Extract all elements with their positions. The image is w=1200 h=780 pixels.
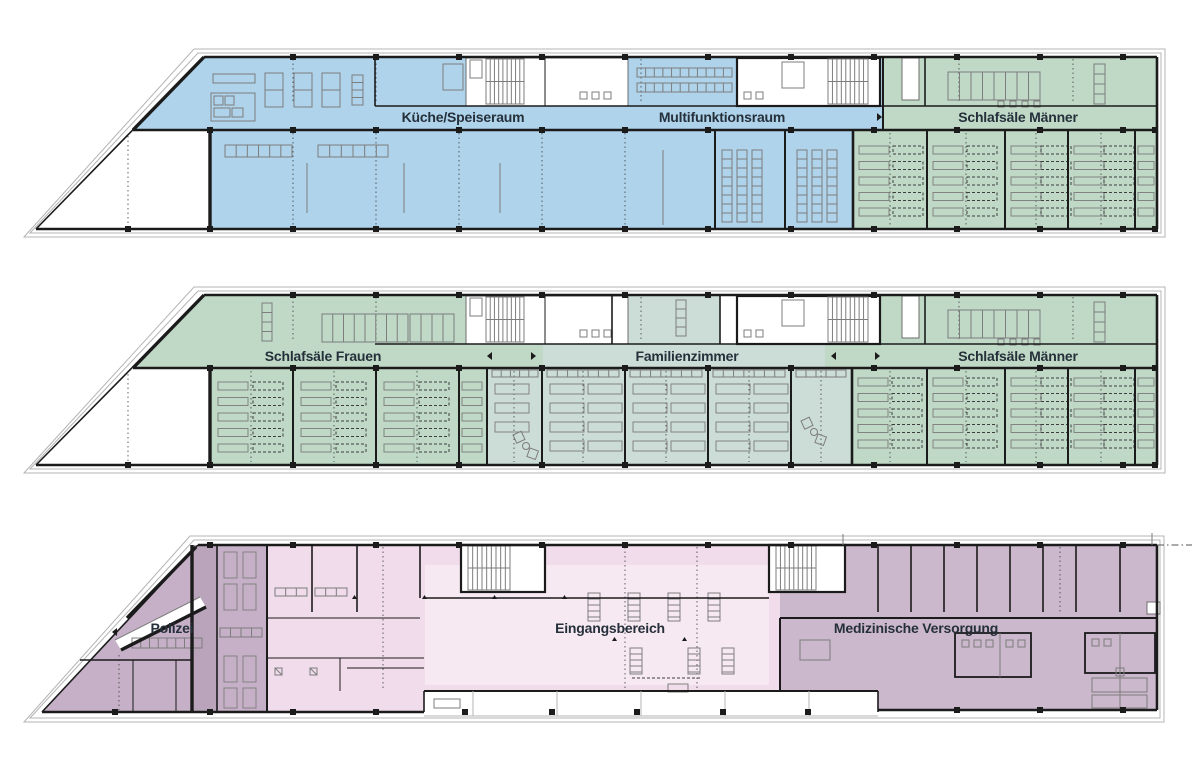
column-marker: [954, 365, 960, 371]
floor-middle-geometry: [24, 287, 1165, 473]
room-label-kueche-speiseraum: Küche/Speiseraum: [402, 109, 525, 125]
column-marker: [1152, 365, 1158, 371]
column-marker: [456, 462, 462, 468]
floor-plans-drawing: Küche/Speiseraum Multifunktionsraum Schl…: [0, 0, 1200, 780]
column-marker: [373, 127, 379, 133]
room-label-multifunktionsraum: Multifunktionsraum: [659, 109, 785, 125]
column-marker: [622, 365, 628, 371]
column-marker: [705, 127, 711, 133]
column-marker: [1120, 127, 1126, 133]
column-marker: [622, 127, 628, 133]
zone-corridor: [192, 545, 217, 712]
column-marker: [1120, 542, 1126, 548]
room-label-schlafsaele-frauen: Schlafsäle Frauen: [265, 348, 381, 364]
column-marker: [1037, 542, 1043, 548]
column-marker: [539, 462, 545, 468]
column-marker: [1120, 462, 1126, 468]
room-label-polizei: Polizei: [151, 620, 194, 636]
column-marker: [207, 365, 213, 371]
column-marker: [954, 292, 960, 298]
room-label-schlafsaele-maenner-og1: Schlafsäle Männer: [958, 348, 1078, 364]
column-marker: [788, 226, 794, 232]
column-marker: [373, 709, 379, 715]
column-marker: [290, 542, 296, 548]
column-marker: [788, 127, 794, 133]
room-label-eingangsbereich: Eingangsbereich: [555, 620, 665, 636]
room-label-medizinische-versorgung: Medizinische Versorgung: [834, 620, 998, 636]
column-marker: [788, 292, 794, 298]
zone-frauen-hall: [210, 368, 487, 465]
column-marker: [1037, 226, 1043, 232]
column-marker: [720, 709, 726, 715]
column-marker: [373, 365, 379, 371]
column-marker: [1152, 462, 1158, 468]
column-marker: [1037, 365, 1043, 371]
column-marker: [871, 365, 877, 371]
column-marker: [1152, 127, 1158, 133]
column-marker: [112, 709, 118, 715]
column-marker: [462, 709, 468, 715]
column-marker: [290, 292, 296, 298]
column-marker: [871, 542, 877, 548]
column-marker: [456, 365, 462, 371]
room-label-schlafsaele-maenner-og2: Schlafsäle Männer: [958, 109, 1078, 125]
column-marker: [290, 54, 296, 60]
column-marker: [622, 462, 628, 468]
column-marker: [125, 226, 131, 232]
column-marker: [1037, 54, 1043, 60]
zone-speisesaal-hall: [210, 130, 853, 229]
column-marker: [290, 709, 296, 715]
column-marker: [634, 709, 640, 715]
column-marker: [788, 54, 794, 60]
zone-eingang-sued: [267, 691, 424, 712]
column-marker: [871, 462, 877, 468]
column-marker: [207, 709, 213, 715]
column-marker: [539, 127, 545, 133]
column-marker: [539, 54, 545, 60]
column-marker: [622, 54, 628, 60]
column-marker: [456, 127, 462, 133]
column-marker: [1120, 707, 1126, 713]
column-marker: [373, 462, 379, 468]
column-marker: [290, 462, 296, 468]
column-marker: [705, 462, 711, 468]
column-marker: [788, 462, 794, 468]
floor-plan-ground: Polizei Eingangsbereich Medizinische Ver…: [24, 533, 1192, 722]
column-marker: [705, 292, 711, 298]
column-marker: [871, 54, 877, 60]
column-marker: [456, 226, 462, 232]
column-marker: [125, 462, 131, 468]
column-marker: [456, 54, 462, 60]
column-marker: [954, 542, 960, 548]
column-marker: [1120, 226, 1126, 232]
column-marker: [373, 54, 379, 60]
column-marker: [1037, 462, 1043, 468]
column-marker: [954, 54, 960, 60]
column-marker: [788, 542, 794, 548]
column-marker: [539, 365, 545, 371]
column-marker: [539, 292, 545, 298]
column-marker: [1152, 226, 1158, 232]
column-marker: [290, 127, 296, 133]
column-marker: [954, 226, 960, 232]
column-marker: [788, 365, 794, 371]
shaft: [902, 58, 919, 100]
column-marker: [871, 226, 877, 232]
column-marker: [290, 226, 296, 232]
column-marker: [373, 542, 379, 548]
column-marker: [290, 365, 296, 371]
shaft: [902, 296, 919, 338]
column-marker: [622, 226, 628, 232]
floor-plan-top: Küche/Speiseraum Multifunktionsraum Schl…: [24, 49, 1165, 237]
column-marker: [705, 542, 711, 548]
column-marker: [207, 127, 213, 133]
column-marker: [954, 462, 960, 468]
column-marker: [1037, 292, 1043, 298]
column-marker: [373, 292, 379, 298]
column-marker: [539, 542, 545, 548]
column-marker: [954, 707, 960, 713]
column-marker: [622, 292, 628, 298]
floor-plan-sheet: Küche/Speiseraum Multifunktionsraum Schl…: [0, 0, 1200, 780]
column-marker: [1037, 707, 1043, 713]
column-marker: [871, 292, 877, 298]
column-marker: [805, 709, 811, 715]
column-marker: [1120, 54, 1126, 60]
column-marker: [871, 127, 877, 133]
column-marker: [539, 226, 545, 232]
column-marker: [456, 542, 462, 548]
column-marker: [705, 226, 711, 232]
column-marker: [207, 226, 213, 232]
column-marker: [622, 542, 628, 548]
column-marker: [1120, 365, 1126, 371]
column-marker: [705, 54, 711, 60]
floor-top-geometry: [24, 49, 1165, 237]
column-marker: [705, 365, 711, 371]
column-marker: [207, 542, 213, 548]
column-marker: [1037, 127, 1043, 133]
column-marker: [207, 462, 213, 468]
column-marker: [456, 292, 462, 298]
column-marker: [549, 709, 555, 715]
column-marker: [373, 226, 379, 232]
floor-plan-middle: Schlafsäle Frauen Familienzimmer Schlafs…: [24, 287, 1165, 473]
column-marker: [1120, 292, 1126, 298]
room-label-familienzimmer: Familienzimmer: [635, 348, 739, 364]
column-marker: [954, 127, 960, 133]
